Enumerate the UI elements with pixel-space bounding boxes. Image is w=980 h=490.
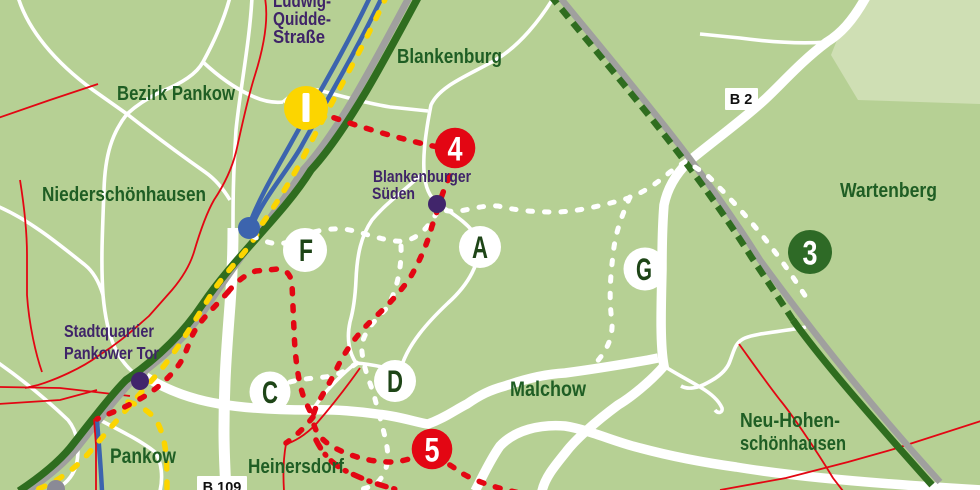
svg-text:B 109: B 109 <box>203 480 242 490</box>
svg-text:D: D <box>387 363 403 399</box>
svg-text:4: 4 <box>448 131 463 169</box>
svg-text:Quidde-: Quidde- <box>273 9 331 29</box>
svg-text:Süden: Süden <box>372 184 415 203</box>
svg-text:Stadtquartier: Stadtquartier <box>64 321 154 341</box>
svg-text:Blankenburg: Blankenburg <box>397 46 502 68</box>
svg-text:schönhausen: schönhausen <box>740 433 846 455</box>
svg-text:G: G <box>636 251 652 287</box>
svg-text:Straße: Straße <box>273 27 325 47</box>
svg-text:Wartenberg: Wartenberg <box>840 180 937 202</box>
svg-text:Malchow: Malchow <box>510 378 587 401</box>
svg-text:Bezirk Pankow: Bezirk Pankow <box>117 82 235 105</box>
svg-text:Heinersdorf: Heinersdorf <box>248 456 344 478</box>
svg-text:Neu-Hohen-: Neu-Hohen- <box>740 410 840 432</box>
svg-text:C: C <box>262 374 278 410</box>
svg-text:B 2: B 2 <box>730 92 753 108</box>
svg-text:5: 5 <box>425 432 440 470</box>
svg-text:A: A <box>472 229 488 265</box>
svg-text:Niederschönhausen: Niederschönhausen <box>42 184 206 206</box>
svg-text:F: F <box>299 232 313 268</box>
svg-text:3: 3 <box>803 235 818 273</box>
svg-text:Pankower Tor: Pankower Tor <box>64 343 159 363</box>
svg-text:Pankow: Pankow <box>110 445 177 468</box>
